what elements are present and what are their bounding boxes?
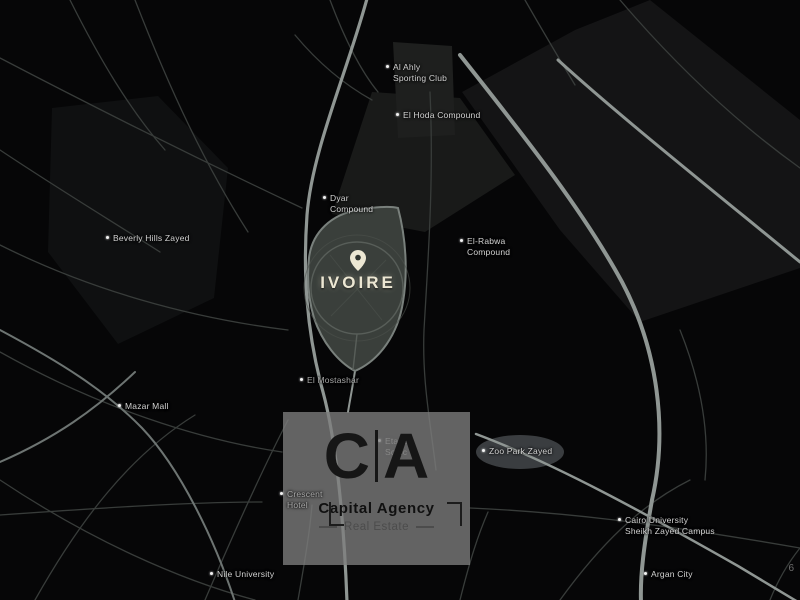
poi-dot bbox=[280, 492, 283, 495]
bracket-right bbox=[447, 502, 462, 526]
location-pin-icon bbox=[350, 250, 366, 271]
poi-dot bbox=[396, 113, 399, 116]
tagline-rule-right bbox=[416, 526, 434, 528]
label-el-rabwa-compound: El-RabwaCompound bbox=[460, 236, 510, 258]
tagline-rule-left bbox=[319, 526, 337, 528]
logo-letter-a: A bbox=[383, 424, 429, 488]
label-al-ahly-sporting-club: Al AhlySporting Club bbox=[386, 62, 447, 84]
ivoire-project-marker: IVOIRE bbox=[306, 250, 410, 293]
label-dyar-compound: DyarCompound bbox=[323, 193, 373, 215]
label-mazar-mall: Mazar Mall bbox=[118, 401, 169, 412]
poi-dot bbox=[386, 65, 389, 68]
label-cairo-university-sheikh-zayed: Cairo UniversitySheikh Zayed Campus bbox=[618, 515, 715, 537]
agency-tagline: Real Estate bbox=[344, 521, 409, 533]
agency-logo: C A bbox=[324, 420, 429, 492]
poi-dot bbox=[106, 236, 109, 239]
project-name: IVOIRE bbox=[306, 273, 410, 293]
logo-letter-c: C bbox=[324, 424, 370, 488]
poi-dot bbox=[644, 572, 647, 575]
map-canvas: Al AhlySporting Club El Hoda Compound Dy… bbox=[0, 0, 800, 600]
poi-dot bbox=[618, 518, 621, 521]
poi-dot bbox=[300, 378, 303, 381]
logo-divider-bar bbox=[375, 430, 378, 482]
poi-dot bbox=[323, 196, 326, 199]
label-el-hoda-compound: El Hoda Compound bbox=[396, 110, 480, 121]
poi-dot bbox=[482, 449, 485, 452]
poi-dot bbox=[460, 239, 463, 242]
label-nile-university: Nile University bbox=[210, 569, 274, 580]
poi-dot bbox=[118, 404, 121, 407]
corner-glyph: 6 bbox=[788, 563, 794, 574]
label-zoo-park-zayed: Zoo Park Zayed bbox=[482, 446, 552, 457]
label-argan-city: Argan City bbox=[644, 569, 693, 580]
label-beverly-hills-zayed: Beverly Hills Zayed bbox=[106, 233, 190, 244]
poi-dot bbox=[210, 572, 213, 575]
bracket-left bbox=[329, 502, 344, 526]
label-el-mostashar: El Mostashar bbox=[300, 375, 359, 386]
label-crescent-hotel: CrescentHotel bbox=[280, 489, 323, 511]
